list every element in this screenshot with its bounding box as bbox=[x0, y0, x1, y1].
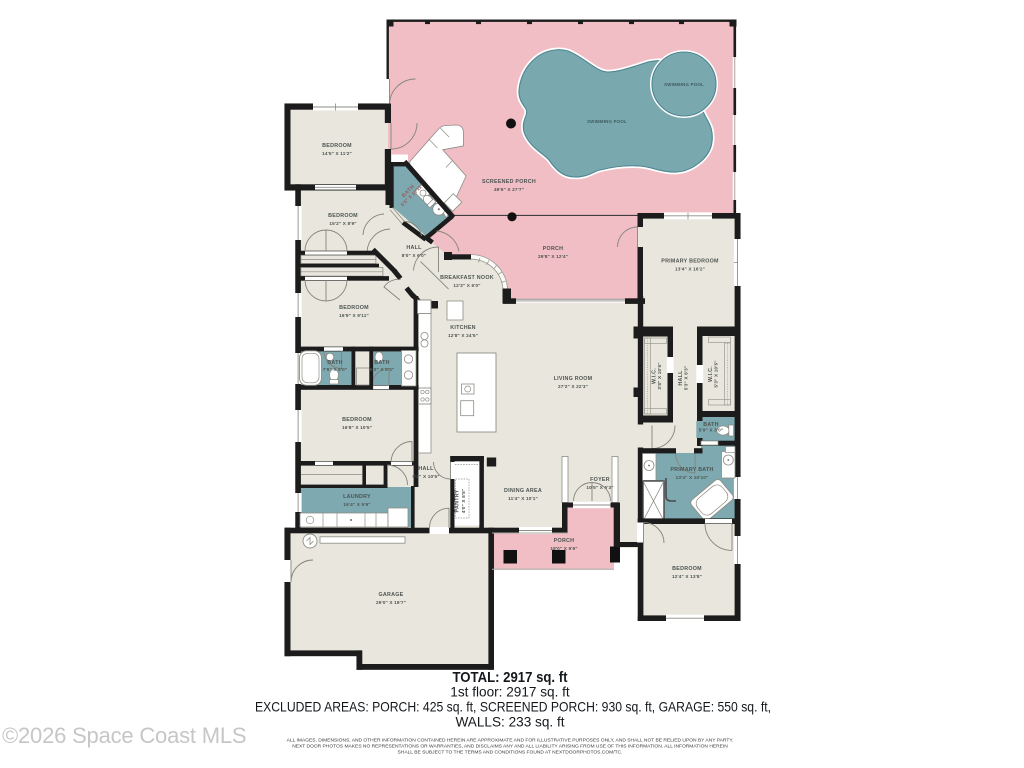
svg-text:HALL: HALL bbox=[418, 466, 434, 472]
svg-text:SCREENED PORCH: SCREENED PORCH bbox=[482, 179, 536, 185]
svg-text:PORCH: PORCH bbox=[554, 538, 575, 544]
svg-text:NEXT DOOR PHOTOS MAKES NO REPR: NEXT DOOR PHOTOS MAKES NO REPRESENTATION… bbox=[292, 744, 728, 750]
svg-text:13'4" X 10'10": 13'4" X 10'10" bbox=[676, 475, 709, 480]
svg-text:16'8" X 10'5": 16'8" X 10'5" bbox=[342, 425, 372, 430]
svg-text:7'6" X 5'0": 7'6" X 5'0" bbox=[323, 367, 347, 372]
svg-text:9'2" X 10'5": 9'2" X 10'5" bbox=[412, 474, 439, 479]
svg-text:BREAKFAST NOOK: BREAKFAST NOOK bbox=[440, 275, 494, 281]
svg-text:LAUNDRY: LAUNDRY bbox=[343, 494, 371, 500]
svg-text:16'9" X 9'11": 16'9" X 9'11" bbox=[339, 313, 369, 318]
svg-text:29'0" X 19'7": 29'0" X 19'7" bbox=[376, 600, 406, 605]
svg-text:PRIMARY BEDROOM: PRIMARY BEDROOM bbox=[661, 259, 719, 265]
svg-text:HALL: HALL bbox=[406, 245, 422, 251]
svg-text:29'8" X 12'4": 29'8" X 12'4" bbox=[538, 254, 568, 259]
svg-text:DINING AREA: DINING AREA bbox=[504, 488, 542, 494]
svg-text:SHALL BE SUBJECT TO THE TERMS: SHALL BE SUBJECT TO THE TERMS AND CONDIT… bbox=[398, 750, 623, 756]
svg-text:5'9" X 3'0": 5'9" X 3'0" bbox=[699, 428, 723, 433]
svg-text:©2026 Space Coast MLS: ©2026 Space Coast MLS bbox=[2, 723, 246, 748]
svg-text:BEDROOM: BEDROOM bbox=[339, 305, 369, 311]
svg-text:PANTRY: PANTRY bbox=[455, 489, 461, 512]
svg-text:12'8" X 24'5": 12'8" X 24'5" bbox=[448, 333, 478, 338]
svg-text:8'0" X 6'0": 8'0" X 6'0" bbox=[402, 253, 426, 258]
svg-text:BEDROOM: BEDROOM bbox=[342, 417, 372, 423]
svg-text:PORCH: PORCH bbox=[543, 246, 564, 252]
svg-text:12'4" X 13'8": 12'4" X 13'8" bbox=[672, 574, 702, 579]
svg-text:5'3" X 8'3": 5'3" X 8'3" bbox=[684, 366, 689, 390]
svg-text:EXCLUDED AREAS: PORCH: 425 sq.: EXCLUDED AREAS: PORCH: 425 sq. ft, SCREE… bbox=[255, 700, 771, 715]
svg-text:13'4" X 16'2": 13'4" X 16'2" bbox=[675, 267, 705, 272]
svg-text:BATH: BATH bbox=[374, 360, 389, 366]
svg-text:3'8" X 10'5": 3'8" X 10'5" bbox=[657, 362, 662, 389]
svg-text:GARAGE: GARAGE bbox=[379, 592, 404, 598]
svg-text:15'2" X 8'9": 15'2" X 8'9" bbox=[329, 221, 356, 226]
svg-text:ALL IMAGES, DIMENSIONS, AND OT: ALL IMAGES, DIMENSIONS, AND OTHER INFORM… bbox=[287, 738, 734, 744]
svg-text:BEDROOM: BEDROOM bbox=[328, 213, 358, 219]
svg-text:49'6" X 27'7": 49'6" X 27'7" bbox=[494, 187, 524, 192]
svg-text:BEDROOM: BEDROOM bbox=[672, 566, 702, 572]
svg-text:LIVING ROOM: LIVING ROOM bbox=[554, 376, 593, 382]
svg-text:4'0" X 8'8": 4'0" X 8'8" bbox=[461, 489, 466, 513]
svg-text:PRIMARY BATH: PRIMARY BATH bbox=[670, 467, 713, 473]
svg-text:KITCHEN: KITCHEN bbox=[450, 325, 476, 331]
svg-text:18'0" X 9'6": 18'0" X 9'6" bbox=[550, 546, 577, 551]
svg-text:6'2" X 5'3": 6'2" X 5'3" bbox=[370, 367, 394, 372]
svg-text:BATH: BATH bbox=[327, 360, 342, 366]
svg-text:27'2" X 22'3": 27'2" X 22'3" bbox=[558, 384, 588, 389]
svg-text:BEDROOM: BEDROOM bbox=[322, 143, 352, 149]
svg-text:14'5" X 11'2": 14'5" X 11'2" bbox=[322, 151, 352, 156]
svg-text:1st floor: 2917 sq. ft: 1st floor: 2917 sq. ft bbox=[450, 685, 570, 700]
svg-text:WALLS: 233 sq. ft: WALLS: 233 sq. ft bbox=[455, 715, 564, 730]
svg-text:SWIMMING POOL: SWIMMING POOL bbox=[587, 119, 627, 124]
svg-text:SWIMMING POOL: SWIMMING POOL bbox=[664, 82, 704, 87]
svg-text:11'4" X 10'1": 11'4" X 10'1" bbox=[508, 496, 538, 501]
svg-text:16'4" X 5'9": 16'4" X 5'9" bbox=[343, 502, 370, 507]
svg-text:10'5" X 5'3": 10'5" X 5'3" bbox=[586, 485, 613, 490]
svg-text:5'3" X 10'5": 5'3" X 10'5" bbox=[714, 360, 719, 387]
svg-text:12'3" X 6'0": 12'3" X 6'0" bbox=[453, 283, 480, 288]
